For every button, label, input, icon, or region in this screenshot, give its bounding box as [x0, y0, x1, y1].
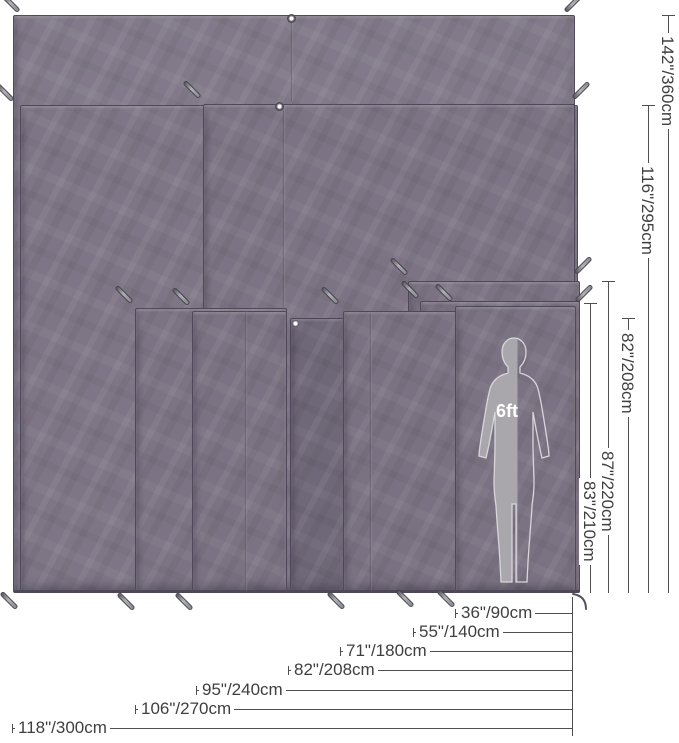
grommet-icon: [292, 320, 299, 327]
height-label-83: 83"/210cm: [579, 478, 599, 565]
dimension-tick: [622, 318, 635, 319]
height-label-142: 142"/360cm: [657, 33, 677, 129]
dimension-tick: [602, 281, 615, 282]
stake-icon: [563, 0, 582, 13]
tarp-size-diagram: 6ft 142"/360cm 116"/295cm 82"/208cm 87"/…: [0, 0, 679, 743]
tarp-seam: [245, 311, 247, 591]
dimension-tick: [135, 705, 136, 714]
stake-icon: [326, 591, 345, 610]
dimension-tick: [288, 666, 289, 675]
tarp-seam: [370, 313, 372, 591]
stake-icon: [1, 0, 20, 13]
dimension-tick: [662, 15, 675, 16]
silhouette-shape: [479, 338, 549, 582]
height-label-87: 87"/220cm: [597, 448, 617, 535]
human-silhouette: 6ft: [470, 334, 562, 586]
width-label-118: 118"/300cm: [15, 718, 110, 738]
dimension-tick: [455, 609, 456, 618]
height-dimension-line-87: [608, 281, 609, 593]
width-label-106: 106"/270cm: [138, 699, 234, 719]
dimension-tick: [642, 105, 655, 106]
width-label-55: 55"/140cm: [416, 622, 503, 642]
width-connector-line: [572, 597, 573, 736]
tarp-small-2: [192, 311, 287, 593]
stake-icon: [0, 591, 19, 610]
grommet-icon: [275, 102, 284, 111]
dimension-tick: [413, 628, 414, 637]
width-label-82: 82"/208cm: [291, 660, 378, 680]
corner-rope-icon: [570, 592, 590, 612]
stake-icon: [174, 592, 193, 611]
height-label-82: 82"/208cm: [617, 330, 637, 417]
tarp-seam: [283, 107, 285, 307]
height-reference-label: 6ft: [496, 401, 518, 421]
width-label-36: 36"/90cm: [458, 603, 535, 623]
dimension-tick: [196, 686, 197, 695]
grommet-icon: [287, 14, 296, 23]
dimension-tick: [12, 724, 13, 733]
width-label-95: 95"/240cm: [199, 680, 286, 700]
dimension-tick: [340, 647, 341, 656]
tarp-seam: [291, 18, 293, 102]
width-label-71: 71"/180cm: [343, 641, 430, 661]
height-label-116: 116"/295cm: [637, 163, 657, 258]
dimension-tick: [584, 303, 597, 304]
stake-icon: [116, 592, 135, 611]
